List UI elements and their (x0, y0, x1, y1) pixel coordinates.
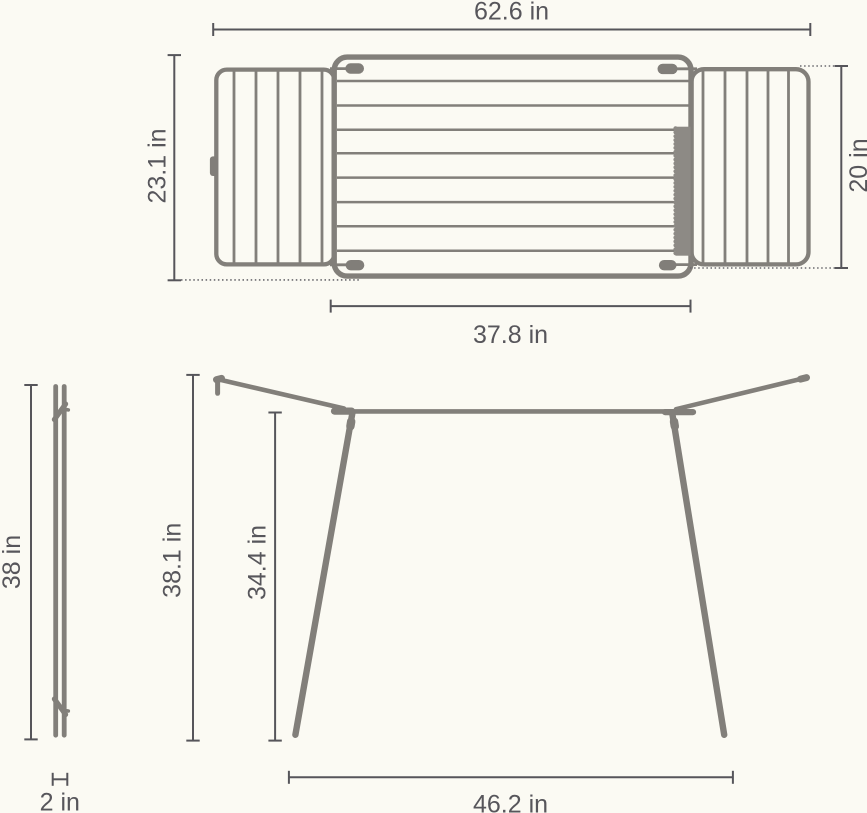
svg-text:37.8 in: 37.8 in (473, 321, 548, 349)
svg-text:23.1 in: 23.1 in (144, 128, 172, 203)
svg-text:20 in: 20 in (845, 138, 867, 192)
svg-text:38 in: 38 in (0, 535, 26, 589)
svg-text:2 in: 2 in (40, 788, 80, 813)
svg-text:46.2 in: 46.2 in (473, 790, 548, 813)
svg-text:62.6 in: 62.6 in (474, 0, 549, 26)
svg-text:38.1 in: 38.1 in (159, 523, 187, 598)
svg-text:34.4 in: 34.4 in (244, 525, 272, 600)
